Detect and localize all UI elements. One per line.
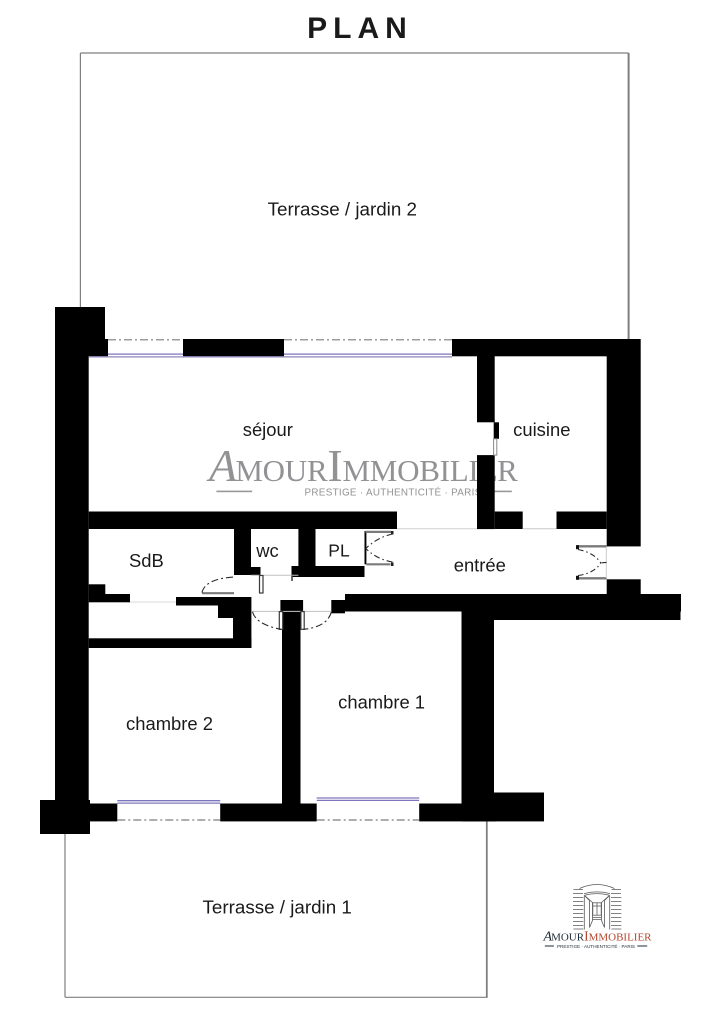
- svg-text:entrée: entrée: [454, 555, 506, 576]
- svg-text:SdB: SdB: [129, 550, 164, 571]
- svg-text:chambre 2: chambre 2: [126, 713, 213, 734]
- svg-text:AMOURIMMOBILIER: AMOURIMMOBILIER: [543, 929, 653, 945]
- svg-text:AMOURIMMOBILIER: AMOURIMMOBILIER: [206, 440, 518, 491]
- svg-text:wc: wc: [255, 540, 278, 561]
- svg-text:Terrasse / jardin 2: Terrasse / jardin 2: [268, 199, 417, 220]
- svg-text:Terrasse / jardin 1: Terrasse / jardin 1: [203, 897, 352, 918]
- svg-text:PL: PL: [328, 541, 350, 561]
- svg-text:séjour: séjour: [243, 419, 293, 440]
- svg-text:PRESTIGE · AUTHENTICITÉ · PARI: PRESTIGE · AUTHENTICITÉ · PARIS: [557, 943, 635, 949]
- svg-text:chambre 1: chambre 1: [338, 692, 425, 713]
- svg-text:PRESTIGE · AUTHENTICITÉ · PARI: PRESTIGE · AUTHENTICITÉ · PARIS: [304, 488, 481, 499]
- svg-text:PLAN: PLAN: [307, 12, 413, 45]
- svg-text:cuisine: cuisine: [513, 419, 570, 440]
